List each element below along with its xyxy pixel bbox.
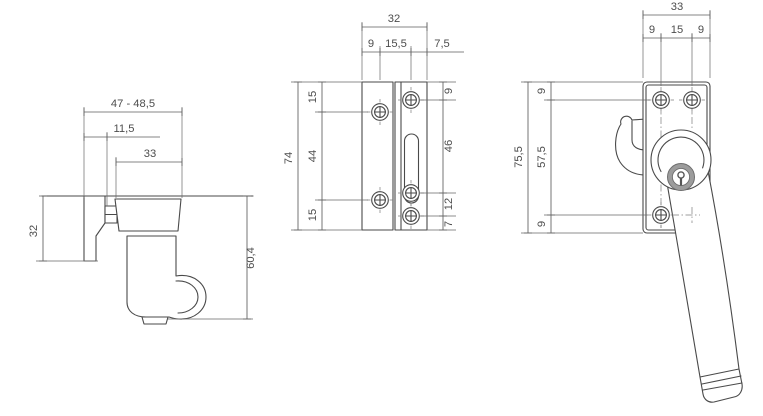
dim-seg: 9 [536, 88, 548, 94]
dim-front-overall-height: 75,5 [513, 146, 525, 168]
handle-foot [142, 317, 168, 324]
dim-seg: 7,5 [434, 38, 450, 50]
technical-drawing: 47 - 48,5 11,5 33 32 60,4 32 9 15,5 7,5 [0, 0, 763, 416]
dim-line-plate-height [39, 196, 47, 261]
dim-seg: 12 [443, 198, 455, 210]
extension-lines-plate-left [291, 82, 368, 230]
dim-seg: 46 [443, 140, 455, 152]
dim-seg: 15 [307, 91, 319, 103]
dim-line-plate-left-segments [318, 82, 326, 230]
plate-view: 32 9 15,5 7,5 74 15 44 15 9 46 12 7 [283, 13, 464, 230]
dim-seg: 44 [307, 150, 319, 162]
hook-outer [616, 116, 646, 175]
dim-seg: 15,5 [385, 38, 407, 50]
dim-plate-height: 32 [28, 225, 40, 237]
hook-plate-side [84, 196, 105, 261]
side-view: 47 - 48,5 11,5 33 32 60,4 [28, 98, 257, 324]
dim-line-front-height-total [524, 82, 532, 233]
dim-front-width: 33 [671, 1, 683, 13]
dim-plate-width: 32 [388, 13, 400, 25]
dim-line-front-left-segments [547, 82, 555, 233]
technical-drawing-canvas: 47 - 48,5 11,5 33 32 60,4 32 9 15,5 7,5 [0, 0, 763, 416]
handle-base-side [115, 199, 181, 231]
dim-handle-depth: 33 [144, 148, 156, 160]
dim-seg: 57,5 [536, 146, 548, 168]
front-view: 33 9 15 9 75,5 9 57,5 9 [513, 1, 742, 402]
dim-seg: 9 [536, 221, 548, 227]
dim-overall-depth: 47 - 48,5 [111, 98, 155, 110]
dim-seg: 15 [671, 24, 683, 36]
dim-seg: 9 [649, 24, 655, 36]
dim-seg: 9 [368, 38, 374, 50]
dim-line-plate-height-total [294, 82, 302, 230]
dim-seg: 15 [307, 209, 319, 221]
dim-handle-length: 60,4 [245, 247, 257, 269]
dim-plate-overall-height: 74 [283, 152, 295, 164]
dim-seg: 7 [443, 221, 455, 227]
dim-backset: 11,5 [114, 123, 135, 135]
handle-shaft [667, 171, 742, 402]
extension-lines-plate-top [362, 22, 427, 80]
dim-seg: 9 [698, 24, 704, 36]
dim-seg: 9 [443, 88, 455, 94]
extension-lines-front-top [643, 10, 710, 86]
